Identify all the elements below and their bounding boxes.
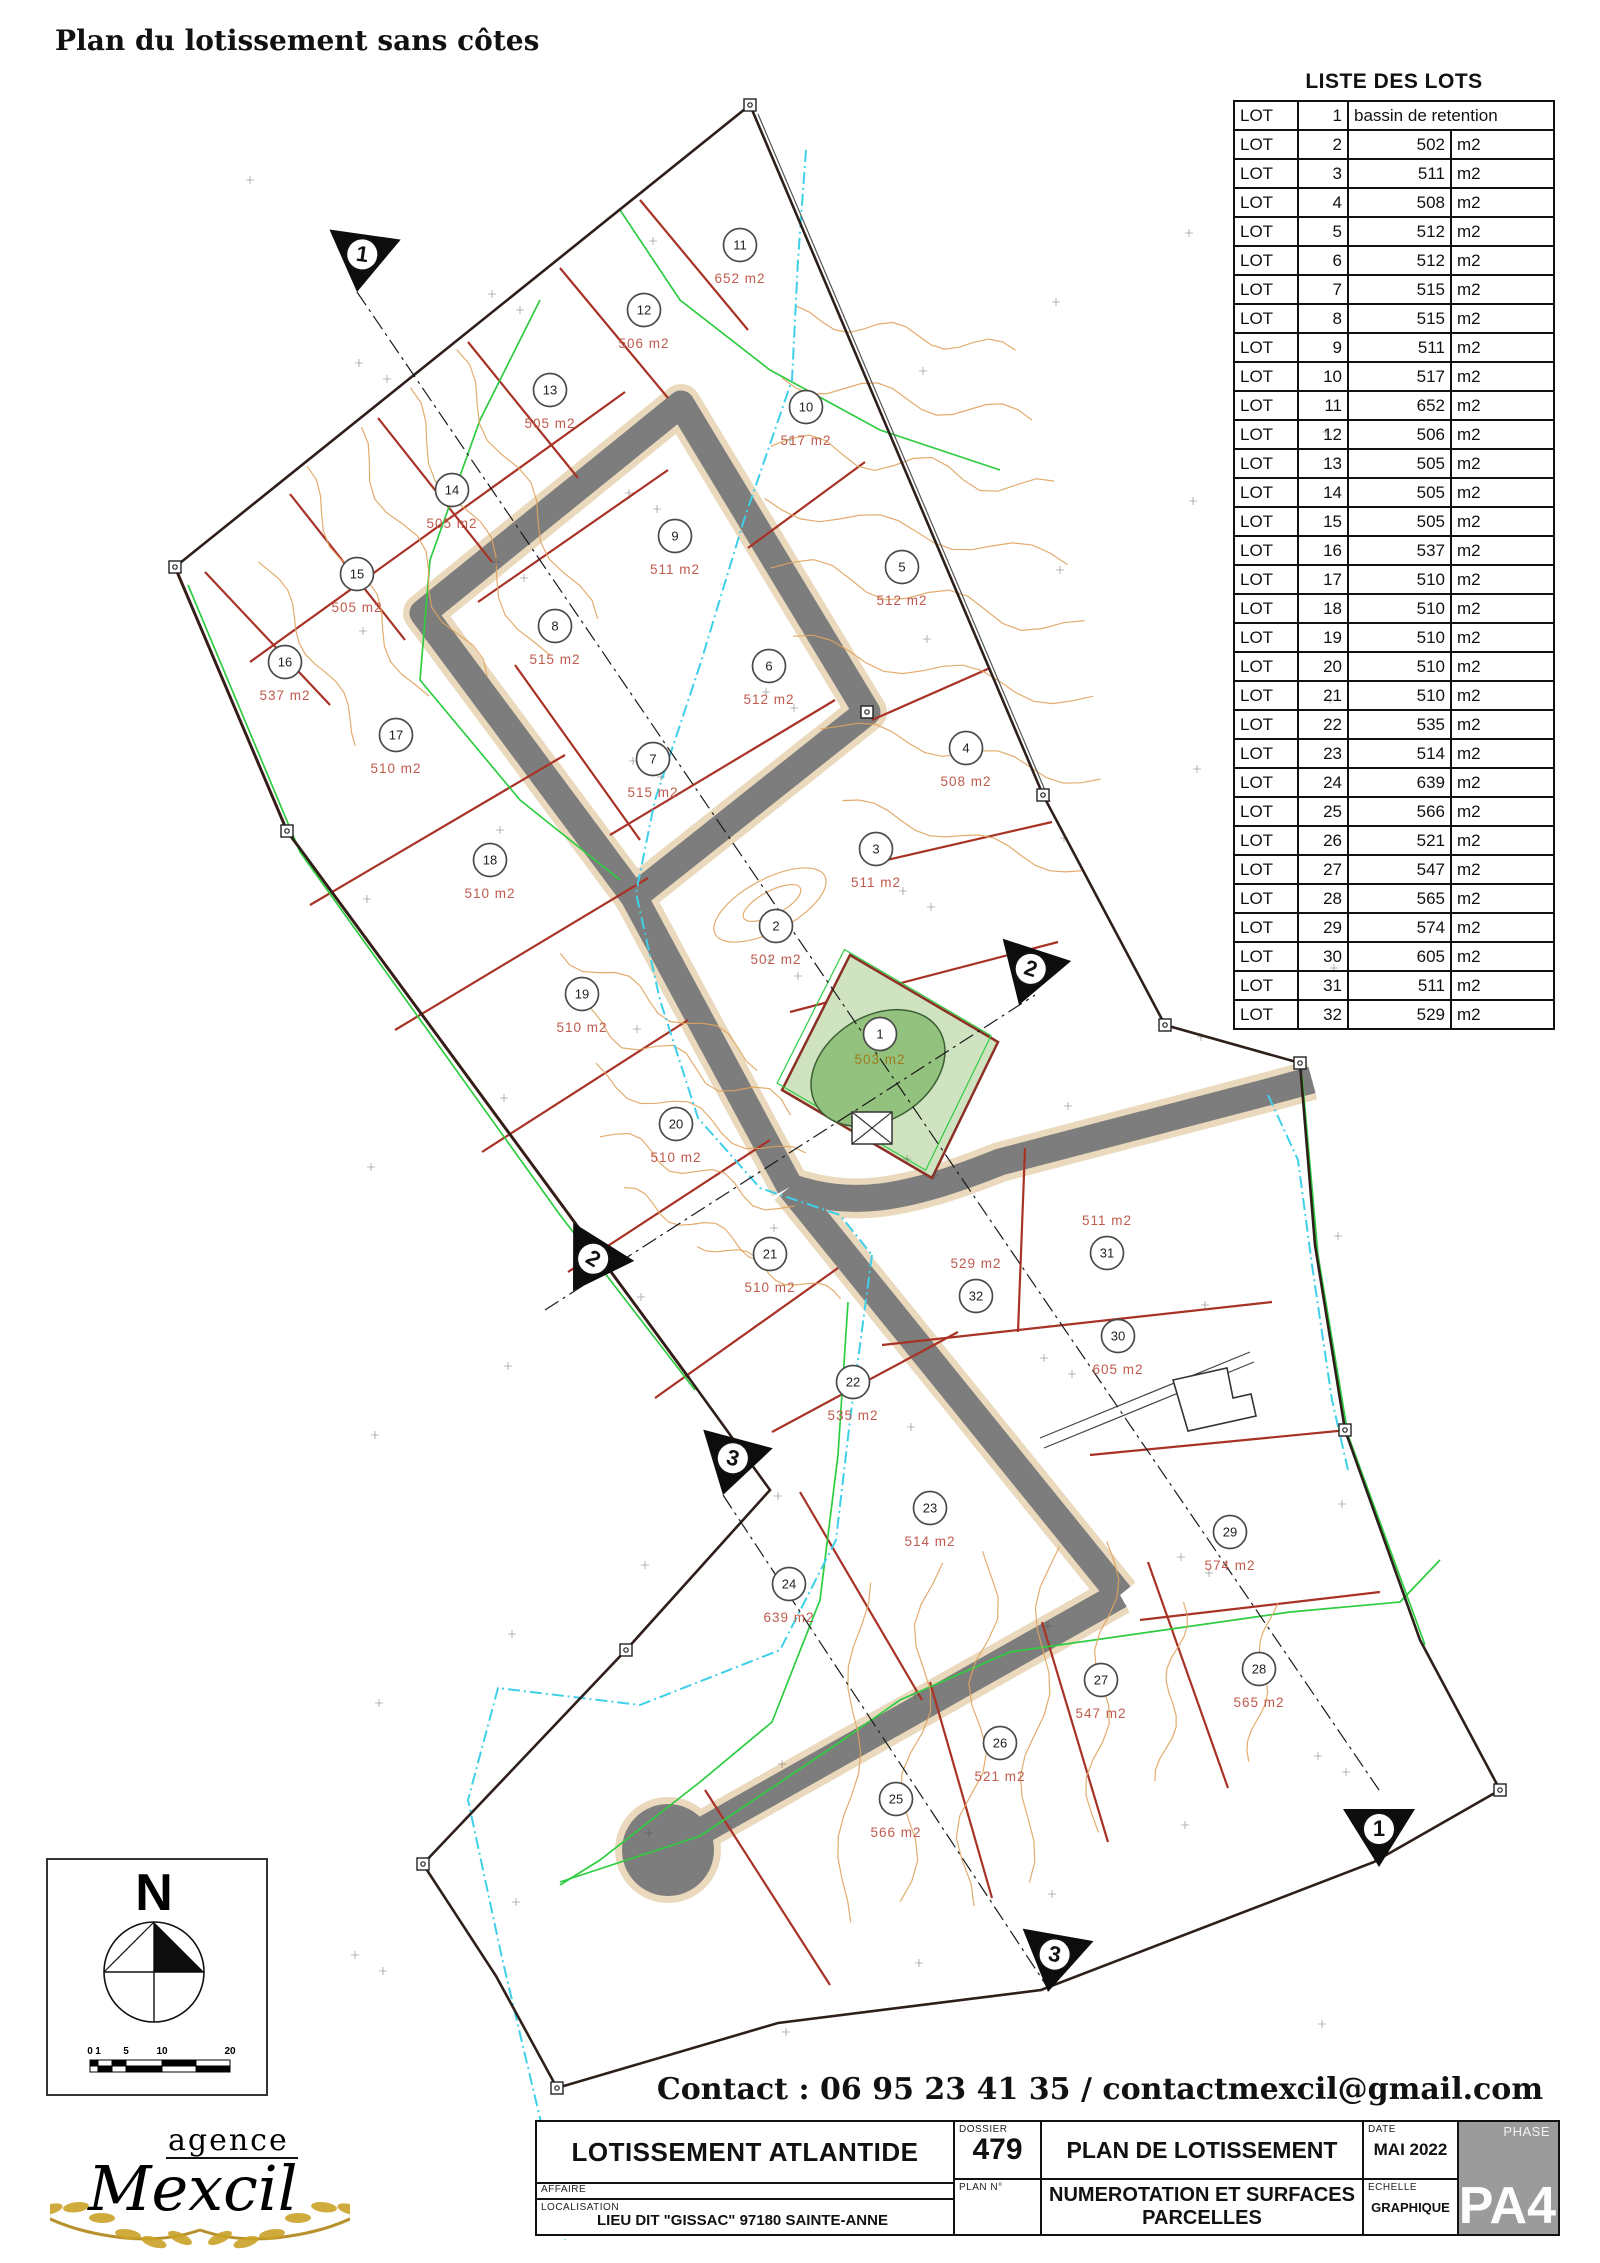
lot-area-cell: 574 [1348, 913, 1451, 942]
lot-marker: 22535 m2 [827, 1366, 878, 1424]
svg-text:22: 22 [846, 1375, 860, 1390]
lot-marker: 14505 m2 [426, 474, 477, 532]
lot-number-cell: 13 [1298, 449, 1348, 478]
lot-area-cell: 529 [1348, 1000, 1451, 1029]
lot-row: LOT3511m2 [1234, 159, 1554, 188]
lot-row: LOT2502m2 [1234, 130, 1554, 159]
lot-marker: 3511 m2 [851, 833, 901, 891]
lot-unit-cell: m2 [1451, 362, 1554, 391]
lot-unit-cell: m2 [1451, 739, 1554, 768]
lot-marker: 31511 m2 [1082, 1213, 1132, 1270]
lot-area-cell: 508 [1348, 188, 1451, 217]
lot-unit-cell: m2 [1451, 246, 1554, 275]
lot-label-cell: LOT [1234, 536, 1298, 565]
date-label: DATE [1368, 2124, 1396, 2135]
lot-number-cell: 32 [1298, 1000, 1348, 1029]
lot-unit-cell: m2 [1451, 536, 1554, 565]
svg-text:3: 3 [872, 842, 879, 857]
lot-area-label: 511 m2 [650, 562, 700, 577]
lot-marker: 29574 m2 [1204, 1516, 1255, 1574]
lot-row: LOT1bassin de retention [1234, 101, 1554, 130]
lot-unit-cell: m2 [1451, 130, 1554, 159]
lot-row: LOT21510m2 [1234, 681, 1554, 710]
lot-number-cell: 30 [1298, 942, 1348, 971]
lot-marker: 5512 m2 [876, 551, 927, 609]
lot-unit-cell: m2 [1451, 275, 1554, 304]
lot-number-cell: 24 [1298, 768, 1348, 797]
lot-area-label: 505 m2 [426, 516, 477, 531]
lots-table: LOT1bassin de retentionLOT2502m2LOT3511m… [1233, 100, 1555, 1030]
lot-area-cell: 511 [1348, 159, 1451, 188]
lot-unit-cell: m2 [1451, 217, 1554, 246]
svg-text:1: 1 [876, 1027, 883, 1042]
section-flag-marker: 2 [542, 1223, 634, 1310]
lot-label-cell: LOT [1234, 391, 1298, 420]
section-flag-marker: 1 [1343, 1809, 1415, 1867]
lot-row: LOT28565m2 [1234, 884, 1554, 913]
svg-text:14: 14 [445, 483, 459, 498]
localisation-cell: LOCALISATION LIEU DIT "GISSAC" 97180 SAI… [537, 2200, 953, 2234]
page-title: Plan du lotissement sans côtes [55, 24, 539, 57]
lot-marker: 4508 m2 [940, 732, 991, 790]
lot-number-cell: 25 [1298, 797, 1348, 826]
lot-label-cell: LOT [1234, 188, 1298, 217]
dossier-cell: DOSSIER 479 [955, 2122, 1040, 2178]
lot-unit-cell: m2 [1451, 594, 1554, 623]
lot-number-cell: 6 [1298, 246, 1348, 275]
lot-area-label: 515 m2 [627, 785, 678, 800]
lot-area-label: 506 m2 [618, 336, 669, 351]
lot-label-cell: LOT [1234, 594, 1298, 623]
lot-label-cell: LOT [1234, 333, 1298, 362]
lot-number-cell: 7 [1298, 275, 1348, 304]
lot-area-label: 510 m2 [650, 1150, 701, 1165]
lot-number-cell: 16 [1298, 536, 1348, 565]
svg-text:27: 27 [1094, 1673, 1108, 1688]
lot-label-cell: LOT [1234, 304, 1298, 333]
lot-label-cell: LOT [1234, 623, 1298, 652]
lot-area-cell: 511 [1348, 971, 1451, 1000]
lot-marker: 28565 m2 [1233, 1653, 1284, 1711]
lot-area-cell: 639 [1348, 768, 1451, 797]
logo-mexcil-text: Mexcil [87, 2152, 298, 2225]
lot-area-label: 511 m2 [851, 875, 901, 890]
lot-area-cell: 566 [1348, 797, 1451, 826]
lots-table-title: LISTE DES LOTS [1233, 70, 1555, 94]
lot-row: LOT32529m2 [1234, 1000, 1554, 1029]
echelle-label: ECHELLE [1368, 2182, 1417, 2193]
plan-number-cell: PLAN N° [955, 2180, 1040, 2234]
lot-label-cell: LOT [1234, 971, 1298, 1000]
lot-row: LOT22535m2 [1234, 710, 1554, 739]
lot-area-label: 547 m2 [1075, 1706, 1126, 1721]
lot-area-cell: 512 [1348, 246, 1451, 275]
lot-number-cell: 12 [1298, 420, 1348, 449]
lot-label-cell: LOT [1234, 362, 1298, 391]
lot-number-cell: 28 [1298, 884, 1348, 913]
lot-number-cell: 26 [1298, 826, 1348, 855]
lot-number-cell: 3 [1298, 159, 1348, 188]
svg-text:7: 7 [649, 752, 656, 767]
lot-markers: 1503 m22502 m23511 m24508 m25512 m26512 … [259, 229, 1284, 1841]
lot-marker: 23514 m2 [904, 1492, 955, 1550]
lot-row: LOT20510m2 [1234, 652, 1554, 681]
lot-unit-cell: m2 [1451, 797, 1554, 826]
lot-marker: 32529 m2 [950, 1256, 1001, 1313]
lot-label-cell: LOT [1234, 275, 1298, 304]
lot-area-cell: bassin de retention [1348, 101, 1554, 130]
svg-text:18: 18 [483, 853, 497, 868]
lot-number-cell: 15 [1298, 507, 1348, 536]
lot-area-cell: 515 [1348, 275, 1451, 304]
lot-unit-cell: m2 [1451, 652, 1554, 681]
lot-marker: 13505 m2 [524, 374, 575, 432]
svg-text:2: 2 [772, 919, 779, 934]
lot-number-cell: 23 [1298, 739, 1348, 768]
lot-row: LOT29574m2 [1234, 913, 1554, 942]
lot-marker: 16537 m2 [259, 646, 310, 704]
lot-number-cell: 11 [1298, 391, 1348, 420]
lot-marker: 25566 m2 [870, 1783, 921, 1841]
lot-row: LOT9511m2 [1234, 333, 1554, 362]
lot-area-label: 510 m2 [464, 886, 515, 901]
lot-area-label: 535 m2 [827, 1408, 878, 1423]
svg-text:10: 10 [156, 2046, 168, 2057]
lot-area-cell: 511 [1348, 333, 1451, 362]
lot-unit-cell: m2 [1451, 826, 1554, 855]
lot-area-label: 512 m2 [743, 692, 794, 707]
lot-area-cell: 521 [1348, 826, 1451, 855]
lot-row: LOT31511m2 [1234, 971, 1554, 1000]
lot-number-cell: 5 [1298, 217, 1348, 246]
date-value: MAI 2022 [1374, 2140, 1448, 2160]
svg-text:8: 8 [551, 619, 558, 634]
lot-label-cell: LOT [1234, 130, 1298, 159]
svg-text:13: 13 [543, 383, 557, 398]
lot-unit-cell: m2 [1451, 449, 1554, 478]
lot-row: LOT24639m2 [1234, 768, 1554, 797]
lot-label-cell: LOT [1234, 1000, 1298, 1029]
plan-number-label: PLAN N° [959, 2182, 1003, 2193]
lot-marker: 6512 m2 [743, 650, 794, 708]
lot-number-cell: 17 [1298, 565, 1348, 594]
lot-row: LOT25566m2 [1234, 797, 1554, 826]
svg-text:5: 5 [123, 2046, 129, 2057]
lot-marker: 24639 m2 [763, 1568, 814, 1626]
lot-unit-cell: m2 [1451, 913, 1554, 942]
lot-number-cell: 14 [1298, 478, 1348, 507]
lot-label-cell: LOT [1234, 159, 1298, 188]
lot-row: LOT5512m2 [1234, 217, 1554, 246]
lot-label-cell: LOT [1234, 739, 1298, 768]
lot-area-cell: 652 [1348, 391, 1451, 420]
lot-row: LOT19510m2 [1234, 623, 1554, 652]
lot-area-cell: 535 [1348, 710, 1451, 739]
date-cell: DATE MAI 2022 [1364, 2122, 1457, 2178]
lot-marker: 9511 m2 [650, 520, 700, 578]
lot-row: LOT13505m2 [1234, 449, 1554, 478]
lot-marker: 8515 m2 [529, 610, 580, 668]
lot-marker: 27547 m2 [1075, 1664, 1126, 1722]
lot-row: LOT7515m2 [1234, 275, 1554, 304]
lot-number-cell: 27 [1298, 855, 1348, 884]
lot-row: LOT26521m2 [1234, 826, 1554, 855]
lot-label-cell: LOT [1234, 913, 1298, 942]
lot-unit-cell: m2 [1451, 391, 1554, 420]
lot-unit-cell: m2 [1451, 507, 1554, 536]
lot-row: LOT10517m2 [1234, 362, 1554, 391]
lot-label-cell: LOT [1234, 449, 1298, 478]
lot-area-label: 565 m2 [1233, 1695, 1284, 1710]
lot-area-cell: 515 [1348, 304, 1451, 333]
svg-text:24: 24 [782, 1577, 796, 1592]
svg-text:19: 19 [575, 987, 589, 1002]
svg-text:20: 20 [669, 1117, 683, 1132]
lot-row: LOT8515m2 [1234, 304, 1554, 333]
lot-number-cell: 18 [1298, 594, 1348, 623]
lot-unit-cell: m2 [1451, 188, 1554, 217]
lot-label-cell: LOT [1234, 565, 1298, 594]
lot-label-cell: LOT [1234, 855, 1298, 884]
lot-area-label: 510 m2 [370, 761, 421, 776]
phase-cell: PHASE PA4 [1459, 2122, 1558, 2234]
svg-text:15: 15 [350, 567, 364, 582]
lot-area-label: 503 m2 [854, 1052, 905, 1067]
lot-marker: 17510 m2 [370, 719, 421, 777]
lot-unit-cell: m2 [1451, 710, 1554, 739]
dossier-label: DOSSIER [959, 2124, 1008, 2135]
lot-number-cell: 20 [1298, 652, 1348, 681]
svg-text:23: 23 [923, 1501, 937, 1516]
lot-number-cell: 2 [1298, 130, 1348, 159]
lot-label-cell: LOT [1234, 246, 1298, 275]
dossier-number: 479 [972, 2133, 1022, 2167]
lot-unit-cell: m2 [1451, 768, 1554, 797]
lot-number-cell: 1 [1298, 101, 1348, 130]
lot-area-label: 505 m2 [524, 416, 575, 431]
affaire-cell: AFFAIRE [537, 2184, 953, 2198]
lot-unit-cell: m2 [1451, 304, 1554, 333]
echelle-value: GRAPHIQUE [1371, 2200, 1450, 2215]
lot-unit-cell: m2 [1451, 159, 1554, 188]
lot-area-cell: 510 [1348, 681, 1451, 710]
lot-number-cell: 10 [1298, 362, 1348, 391]
echelle-cell: ECHELLE GRAPHIQUE [1364, 2180, 1457, 2234]
svg-text:29: 29 [1223, 1525, 1237, 1540]
lot-area-label: 511 m2 [1082, 1213, 1132, 1228]
svg-text:6: 6 [765, 659, 772, 674]
lot-area-cell: 537 [1348, 536, 1451, 565]
lot-area-cell: 505 [1348, 507, 1451, 536]
lot-area-cell: 510 [1348, 594, 1451, 623]
lot-row: LOT18510m2 [1234, 594, 1554, 623]
project-name-cell: LOTISSEMENT ATLANTIDE [537, 2122, 953, 2182]
lot-area-cell: 517 [1348, 362, 1451, 391]
lot-number-cell: 8 [1298, 304, 1348, 333]
localisation-value: LIEU DIT "GISSAC" 97180 SAINTE-ANNE [597, 2212, 888, 2229]
lot-unit-cell: m2 [1451, 478, 1554, 507]
lot-area-cell: 510 [1348, 623, 1451, 652]
lot-unit-cell: m2 [1451, 855, 1554, 884]
lot-row: LOT17510m2 [1234, 565, 1554, 594]
lot-marker: 12506 m2 [618, 294, 669, 352]
lot-area-label: 508 m2 [940, 774, 991, 789]
lot-row: LOT4508m2 [1234, 188, 1554, 217]
lot-area-cell: 510 [1348, 565, 1451, 594]
lot-number-cell: 21 [1298, 681, 1348, 710]
lot-area-label: 529 m2 [950, 1256, 1001, 1271]
lot-label-cell: LOT [1234, 101, 1298, 130]
lot-marker: 30605 m2 [1092, 1320, 1143, 1378]
section-flag-marker: 3 [1013, 1929, 1094, 1999]
svg-text:30: 30 [1111, 1329, 1125, 1344]
lot-label-cell: LOT [1234, 768, 1298, 797]
lot-area-label: 517 m2 [780, 433, 831, 448]
svg-text:0: 0 [87, 2046, 93, 2057]
lot-area-cell: 605 [1348, 942, 1451, 971]
lot-row: LOT11652m2 [1234, 391, 1554, 420]
lot-label-cell: LOT [1234, 942, 1298, 971]
lot-area-label: 566 m2 [870, 1825, 921, 1840]
section-flag-marker: 1 [321, 230, 400, 297]
lot-unit-cell: m2 [1451, 333, 1554, 362]
svg-text:16: 16 [278, 655, 292, 670]
svg-text:1: 1 [95, 2046, 101, 2057]
lot-area-cell: 565 [1348, 884, 1451, 913]
lot-number-cell: 22 [1298, 710, 1348, 739]
lot-area-cell: 547 [1348, 855, 1451, 884]
lot-row: LOT12506m2 [1234, 420, 1554, 449]
svg-text:21: 21 [763, 1247, 777, 1262]
agency-logo: agence Mexcil [50, 2098, 350, 2263]
doc-title: PLAN DE LOTISSEMENT [1067, 2137, 1338, 2164]
lot-unit-cell: m2 [1451, 681, 1554, 710]
lot-label-cell: LOT [1234, 217, 1298, 246]
lot-marker: 15505 m2 [331, 558, 382, 616]
phase-value: PA4 [1459, 2180, 1556, 2232]
contact-line: Contact : 06 95 23 41 35 / contactmexcil… [640, 2072, 1560, 2107]
svg-text:4: 4 [962, 741, 969, 756]
doc-subtitle: NUMEROTATION ET SURFACES PARCELLES [1042, 2184, 1362, 2230]
svg-text:10: 10 [799, 400, 813, 415]
lot-area-label: 521 m2 [974, 1769, 1025, 1784]
lot-label-cell: LOT [1234, 652, 1298, 681]
lot-row: LOT14505m2 [1234, 478, 1554, 507]
lot-label-cell: LOT [1234, 710, 1298, 739]
doc-title-cell: PLAN DE LOTISSEMENT [1042, 2122, 1362, 2178]
affaire-label: AFFAIRE [541, 2184, 586, 2195]
lot-row: LOT27547m2 [1234, 855, 1554, 884]
svg-text:25: 25 [889, 1792, 903, 1807]
lot-area-label: 510 m2 [744, 1280, 795, 1295]
svg-text:11: 11 [733, 238, 747, 253]
north-arrow-box: N 0151020 [46, 1858, 268, 2096]
lot-number-cell: 19 [1298, 623, 1348, 652]
lot-number-cell: 29 [1298, 913, 1348, 942]
lot-unit-cell: m2 [1451, 971, 1554, 1000]
lot-row: LOT16537m2 [1234, 536, 1554, 565]
lot-area-label: 639 m2 [763, 1610, 814, 1625]
svg-text:1: 1 [1373, 1816, 1385, 1841]
lot-label-cell: LOT [1234, 507, 1298, 536]
lot-area-label: 652 m2 [714, 271, 765, 286]
lot-label-cell: LOT [1234, 420, 1298, 449]
scale-bar: 0151020 [87, 2046, 236, 2072]
svg-text:32: 32 [969, 1289, 983, 1304]
lot-unit-cell: m2 [1451, 884, 1554, 913]
lot-label-cell: LOT [1234, 681, 1298, 710]
lot-area-label: 514 m2 [904, 1534, 955, 1549]
project-name: LOTISSEMENT ATLANTIDE [571, 2137, 918, 2168]
lot-marker: 19510 m2 [556, 978, 607, 1036]
lot-label-cell: LOT [1234, 826, 1298, 855]
lot-label-cell: LOT [1234, 478, 1298, 507]
lot-area-label: 537 m2 [259, 688, 310, 703]
lot-label-cell: LOT [1234, 797, 1298, 826]
lot-row: LOT6512m2 [1234, 246, 1554, 275]
lot-area-label: 515 m2 [529, 652, 580, 667]
section-flag-marker: 2 [985, 939, 1071, 1016]
svg-text:12: 12 [637, 303, 651, 318]
existing-building [1173, 1368, 1256, 1431]
svg-text:9: 9 [671, 529, 678, 544]
lot-area-label: 510 m2 [556, 1020, 607, 1035]
lot-area-cell: 505 [1348, 478, 1451, 507]
lot-area-label: 574 m2 [1204, 1558, 1255, 1573]
lot-unit-cell: m2 [1451, 942, 1554, 971]
lot-unit-cell: m2 [1451, 420, 1554, 449]
lot-marker: 20510 m2 [650, 1108, 701, 1166]
lot-area-cell: 510 [1348, 652, 1451, 681]
lot-area-label: 505 m2 [331, 600, 382, 615]
lot-row: LOT23514m2 [1234, 739, 1554, 768]
svg-text:28: 28 [1252, 1662, 1266, 1677]
svg-text:5: 5 [898, 560, 905, 575]
lot-number-cell: 9 [1298, 333, 1348, 362]
lot-number-cell: 4 [1298, 188, 1348, 217]
svg-text:26: 26 [993, 1736, 1007, 1751]
doc-subtitle-cell: NUMEROTATION ET SURFACES PARCELLES [1042, 2180, 1362, 2234]
lot-area-label: 502 m2 [750, 952, 801, 967]
svg-text:20: 20 [224, 2046, 236, 2057]
compass-icon [104, 1922, 204, 2022]
phase-label: PHASE [1503, 2124, 1550, 2139]
lot-label-cell: LOT [1234, 884, 1298, 913]
lot-unit-cell: m2 [1451, 565, 1554, 594]
title-block: LOTISSEMENT ATLANTIDE AFFAIRE LOCALISATI… [535, 2120, 1560, 2236]
lot-row: LOT30605m2 [1234, 942, 1554, 971]
plan-document-page: 1503 m22502 m23511 m24508 m25512 m26512 … [0, 0, 1600, 2263]
svg-text:31: 31 [1100, 1246, 1114, 1261]
svg-text:17: 17 [389, 728, 403, 743]
lot-unit-cell: m2 [1451, 1000, 1554, 1029]
lot-area-cell: 502 [1348, 130, 1451, 159]
lot-marker: 21510 m2 [744, 1238, 795, 1296]
lot-area-label: 512 m2 [876, 593, 927, 608]
lots-list-panel: LISTE DES LOTS LOT1bassin de retentionLO… [1233, 70, 1555, 1030]
lot-area-cell: 506 [1348, 420, 1451, 449]
lot-area-cell: 505 [1348, 449, 1451, 478]
lot-marker: 11652 m2 [714, 229, 765, 287]
north-letter: N [135, 1864, 173, 1922]
lot-unit-cell: m2 [1451, 623, 1554, 652]
lot-area-label: 605 m2 [1092, 1362, 1143, 1377]
lot-row: LOT15505m2 [1234, 507, 1554, 536]
lot-number-cell: 31 [1298, 971, 1348, 1000]
lot-area-cell: 512 [1348, 217, 1451, 246]
section-flag-marker: 3 [688, 1430, 773, 1505]
lot-marker: 18510 m2 [464, 844, 515, 902]
